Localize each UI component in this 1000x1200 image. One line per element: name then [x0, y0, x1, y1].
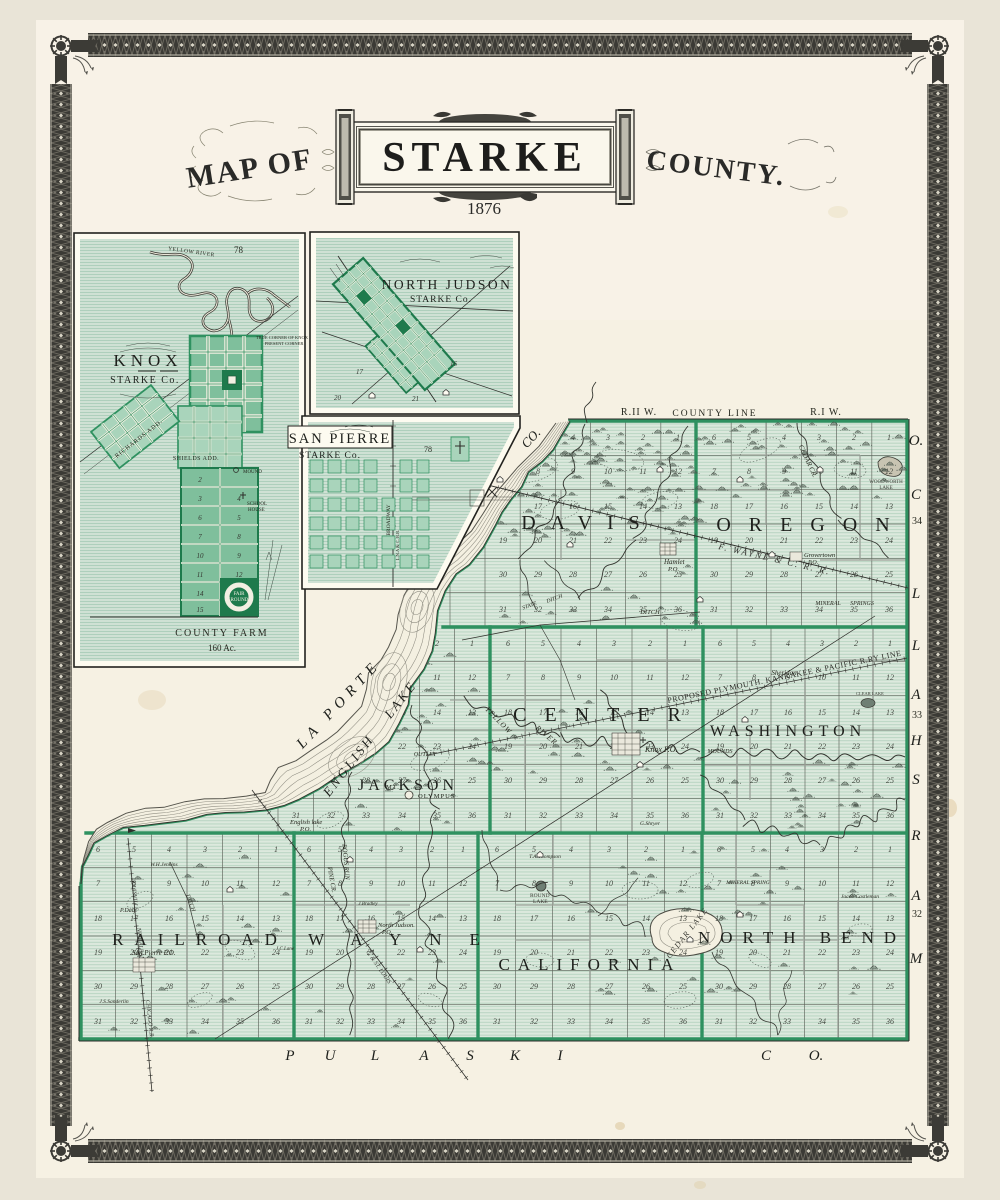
svg-text:17: 17: [336, 914, 345, 923]
svg-text:27: 27: [397, 982, 406, 991]
svg-text:26: 26: [639, 570, 647, 579]
svg-text:2: 2: [854, 845, 858, 854]
svg-text:33: 33: [568, 605, 577, 614]
svg-text:36: 36: [680, 811, 689, 820]
svg-text:5: 5: [541, 639, 545, 648]
svg-text:22: 22: [398, 742, 406, 751]
svg-text:25: 25: [885, 570, 893, 579]
svg-text:9: 9: [569, 879, 573, 888]
svg-text:17: 17: [749, 914, 758, 923]
svg-text:26: 26: [850, 570, 858, 579]
svg-text:11: 11: [852, 673, 859, 682]
svg-text:DAVIS: DAVIS: [521, 512, 655, 534]
svg-text:31: 31: [709, 605, 718, 614]
svg-text:MOUND: MOUND: [243, 470, 262, 475]
svg-text:HOUSE: HOUSE: [248, 508, 265, 513]
svg-text:16: 16: [567, 914, 575, 923]
svg-text:14: 14: [197, 590, 205, 598]
svg-text:Hamlet: Hamlet: [663, 558, 686, 566]
svg-text:6: 6: [506, 639, 510, 648]
svg-text:32: 32: [335, 1017, 344, 1026]
svg-text:30: 30: [93, 982, 102, 991]
svg-text:18: 18: [715, 914, 723, 923]
svg-text:North Judson.: North Judson.: [377, 922, 415, 929]
svg-text:26: 26: [428, 982, 436, 991]
svg-text:26: 26: [236, 982, 244, 991]
svg-text:18: 18: [305, 914, 313, 923]
svg-text:18: 18: [716, 708, 724, 717]
svg-text:15: 15: [818, 914, 826, 923]
svg-text:160 Ac.: 160 Ac.: [208, 643, 236, 653]
svg-text:OREGON: OREGON: [716, 514, 907, 536]
svg-text:27: 27: [605, 982, 614, 991]
svg-text:STARKE Co.: STARKE Co.: [110, 375, 180, 386]
svg-text:S: S: [466, 1048, 474, 1064]
svg-text:3: 3: [398, 845, 403, 854]
svg-text:29: 29: [130, 982, 138, 991]
svg-text:31: 31: [503, 811, 512, 820]
svg-text:34: 34: [396, 1017, 405, 1026]
svg-text:LAKE: LAKE: [879, 486, 892, 491]
svg-text:CENTER: CENTER: [513, 704, 699, 726]
svg-text:28: 28: [567, 982, 575, 991]
svg-text:33: 33: [783, 811, 792, 820]
svg-text:30: 30: [709, 570, 718, 579]
svg-text:34: 34: [604, 1017, 613, 1026]
svg-text:33: 33: [912, 710, 922, 721]
svg-text:30: 30: [492, 982, 501, 991]
svg-text:34: 34: [200, 1017, 209, 1026]
svg-text:10: 10: [818, 879, 826, 888]
svg-text:16: 16: [450, 360, 458, 368]
svg-text:13: 13: [886, 914, 894, 923]
svg-text:26: 26: [852, 982, 860, 991]
svg-text:BROADWAY: BROADWAY: [386, 504, 392, 535]
svg-text:21: 21: [575, 742, 583, 751]
svg-text:O.: O.: [909, 433, 924, 449]
svg-text:36: 36: [458, 1017, 467, 1026]
svg-text:11: 11: [639, 467, 646, 476]
svg-text:29: 29: [336, 982, 344, 991]
svg-text:GROUNDS: GROUNDS: [227, 598, 251, 603]
svg-text:1: 1: [888, 639, 892, 648]
svg-text:23: 23: [852, 948, 860, 957]
svg-text:DITCH: DITCH: [639, 609, 660, 616]
svg-text:21: 21: [367, 948, 375, 957]
svg-text:25: 25: [272, 982, 280, 991]
svg-text:4: 4: [369, 845, 373, 854]
svg-text:19: 19: [94, 948, 102, 957]
svg-text:27: 27: [604, 570, 613, 579]
svg-text:7: 7: [198, 533, 202, 541]
svg-text:20: 20: [749, 948, 757, 957]
svg-text:12: 12: [886, 879, 894, 888]
svg-text:12: 12: [679, 879, 687, 888]
svg-text:25: 25: [886, 982, 894, 991]
svg-text:21: 21: [784, 742, 792, 751]
svg-text:8: 8: [541, 673, 545, 682]
svg-text:35: 35: [851, 811, 860, 820]
svg-text:C: C: [761, 1048, 772, 1064]
svg-text:32: 32: [744, 605, 753, 614]
svg-text:19: 19: [499, 536, 507, 545]
svg-text:32: 32: [326, 811, 335, 820]
svg-text:35: 35: [235, 1017, 244, 1026]
svg-text:36: 36: [678, 1017, 687, 1026]
svg-text:14: 14: [236, 914, 244, 923]
svg-text:2: 2: [430, 845, 434, 854]
svg-text:19: 19: [710, 536, 718, 545]
svg-text:M: M: [909, 951, 924, 967]
svg-text:MOUNDS: MOUNDS: [707, 749, 733, 755]
svg-text:I: I: [557, 1048, 564, 1064]
svg-text:1: 1: [681, 845, 685, 854]
svg-text:31: 31: [714, 1017, 723, 1026]
svg-text:3: 3: [816, 433, 821, 442]
svg-text:5: 5: [747, 433, 751, 442]
svg-text:6: 6: [712, 433, 716, 442]
svg-text:24: 24: [681, 742, 689, 751]
svg-text:1876: 1876: [467, 199, 501, 218]
svg-text:25: 25: [679, 982, 687, 991]
svg-text:78: 78: [234, 245, 244, 255]
svg-text:15: 15: [201, 914, 209, 923]
svg-text:8: 8: [532, 879, 536, 888]
svg-text:5: 5: [237, 514, 241, 522]
svg-text:31: 31: [715, 811, 724, 820]
svg-text:2: 2: [648, 639, 652, 648]
svg-text:29: 29: [534, 570, 542, 579]
svg-text:OUTLET: OUTLET: [414, 752, 437, 758]
svg-text:TRUE CORNER OF KNOX: TRUE CORNER OF KNOX: [256, 335, 309, 340]
svg-text:30: 30: [304, 982, 313, 991]
svg-text:5: 5: [752, 639, 756, 648]
svg-text:P.Daly: P.Daly: [119, 908, 136, 914]
svg-text:35: 35: [432, 811, 441, 820]
svg-text:20: 20: [539, 742, 547, 751]
svg-text:4: 4: [782, 433, 786, 442]
svg-text:11: 11: [236, 879, 243, 888]
svg-text:13: 13: [272, 914, 280, 923]
svg-text:SAN PIERRE: SAN PIERRE: [289, 431, 392, 447]
svg-text:34: 34: [603, 605, 612, 614]
svg-text:35: 35: [851, 1017, 860, 1026]
svg-text:22: 22: [397, 948, 405, 957]
svg-text:P.O.: P.O.: [667, 566, 679, 573]
svg-text:20: 20: [745, 536, 753, 545]
svg-text:31: 31: [498, 605, 507, 614]
svg-text:23: 23: [852, 742, 860, 751]
svg-text:18: 18: [710, 502, 718, 511]
svg-text:SCHOOL: SCHOOL: [247, 502, 267, 507]
svg-text:10: 10: [605, 879, 613, 888]
svg-text:K: K: [509, 1048, 521, 1064]
svg-text:Knox P.O.: Knox P.O.: [644, 745, 678, 754]
svg-text:33: 33: [574, 811, 583, 820]
svg-text:2: 2: [198, 476, 202, 484]
svg-text:23: 23: [639, 536, 647, 545]
svg-text:17: 17: [745, 502, 754, 511]
svg-text:8: 8: [752, 673, 756, 682]
svg-text:21: 21: [412, 395, 419, 403]
svg-text:1: 1: [888, 845, 892, 854]
svg-text:10: 10: [604, 467, 612, 476]
svg-text:11: 11: [646, 673, 653, 682]
svg-text:30: 30: [714, 982, 723, 991]
svg-text:18: 18: [493, 914, 501, 923]
svg-text:26: 26: [642, 982, 650, 991]
svg-text:A: A: [418, 1048, 429, 1064]
svg-text:1: 1: [676, 433, 680, 442]
svg-text:24: 24: [459, 948, 467, 957]
svg-text:36: 36: [271, 1017, 280, 1026]
svg-text:NORTH BEND: NORTH BEND: [698, 928, 906, 947]
svg-text:19: 19: [715, 948, 723, 957]
svg-text:L: L: [911, 638, 920, 654]
svg-text:5: 5: [132, 845, 136, 854]
svg-text:4: 4: [577, 639, 581, 648]
svg-text:14: 14: [639, 502, 647, 511]
svg-text:34: 34: [397, 811, 406, 820]
svg-text:11: 11: [850, 467, 857, 476]
svg-text:33: 33: [779, 605, 788, 614]
svg-text:20: 20: [750, 742, 758, 751]
svg-text:3: 3: [606, 845, 611, 854]
svg-text:23: 23: [236, 948, 244, 957]
svg-text:17: 17: [130, 914, 139, 923]
svg-text:12: 12: [885, 467, 893, 476]
svg-text:17: 17: [530, 914, 539, 923]
svg-text:26: 26: [852, 776, 860, 785]
svg-text:12: 12: [886, 673, 894, 682]
svg-text:11: 11: [428, 879, 435, 888]
svg-text:4: 4: [569, 845, 573, 854]
svg-text:33: 33: [366, 1017, 375, 1026]
svg-text:29: 29: [530, 982, 538, 991]
svg-text:13: 13: [885, 502, 893, 511]
svg-text:9: 9: [782, 467, 786, 476]
svg-text:2: 2: [644, 845, 648, 854]
svg-text:17: 17: [534, 502, 543, 511]
svg-text:24: 24: [886, 742, 894, 751]
svg-text:CALIFORNIA: CALIFORNIA: [499, 955, 682, 974]
svg-text:S: S: [912, 772, 920, 788]
svg-text:3: 3: [197, 495, 202, 503]
svg-text:SPRINGS: SPRINGS: [850, 601, 874, 607]
svg-text:12: 12: [459, 879, 467, 888]
svg-text:32: 32: [538, 811, 547, 820]
svg-text:30: 30: [498, 570, 507, 579]
svg-text:P: P: [284, 1048, 294, 1064]
svg-text:COUNTY LINE: COUNTY LINE: [672, 409, 757, 419]
svg-text:MINERAL SPRING: MINERAL SPRING: [725, 880, 769, 886]
svg-text:14: 14: [642, 914, 650, 923]
svg-text:14: 14: [852, 708, 860, 717]
svg-text:9: 9: [167, 879, 171, 888]
svg-text:9: 9: [237, 552, 241, 560]
svg-text:FAIR: FAIR: [233, 592, 245, 597]
svg-text:STARKE: STARKE: [382, 135, 588, 181]
svg-text:4: 4: [237, 495, 241, 503]
svg-text:36: 36: [884, 605, 893, 614]
svg-text:32: 32: [529, 1017, 538, 1026]
svg-text:2: 2: [852, 433, 856, 442]
svg-text:3: 3: [605, 433, 610, 442]
svg-text:2: 2: [854, 639, 858, 648]
svg-text:LAKE: LAKE: [533, 899, 548, 905]
svg-text:4: 4: [786, 639, 790, 648]
svg-text:20: 20: [534, 536, 542, 545]
svg-text:10: 10: [610, 673, 618, 682]
svg-text:English lake: English lake: [289, 819, 322, 826]
svg-text:1: 1: [461, 845, 465, 854]
svg-text:25: 25: [886, 776, 894, 785]
svg-text:11: 11: [852, 879, 859, 888]
svg-text:27: 27: [818, 776, 827, 785]
svg-text:R.II W.: R.II W.: [621, 407, 657, 418]
svg-text:L: L: [911, 586, 920, 602]
svg-text:30: 30: [503, 776, 512, 785]
svg-text:WASHINGTON: WASHINGTON: [710, 723, 866, 740]
svg-text:12: 12: [468, 673, 476, 682]
svg-text:20: 20: [334, 394, 342, 402]
svg-text:Jacob Castleman: Jacob Castleman: [841, 894, 879, 900]
svg-text:L.N.A & C. R.R.: L.N.A & C. R.R.: [395, 530, 400, 561]
svg-text:11: 11: [433, 673, 440, 682]
svg-text:16: 16: [780, 502, 788, 511]
svg-text:T.A.Thompson: T.A.Thompson: [529, 854, 561, 860]
svg-text:35: 35: [641, 1017, 650, 1026]
svg-text:22: 22: [201, 948, 209, 957]
svg-text:33: 33: [782, 1017, 791, 1026]
svg-text:15: 15: [818, 708, 826, 717]
svg-text:8: 8: [747, 467, 751, 476]
svg-text:33: 33: [164, 1017, 173, 1026]
svg-text:14: 14: [852, 914, 860, 923]
svg-text:24: 24: [886, 948, 894, 957]
svg-text:O.: O.: [809, 1048, 824, 1064]
svg-text:6: 6: [307, 845, 311, 854]
svg-text:31: 31: [93, 1017, 102, 1026]
svg-text:U: U: [325, 1048, 337, 1064]
svg-text:18: 18: [94, 914, 102, 923]
svg-text:11: 11: [642, 879, 649, 888]
svg-text:21: 21: [783, 948, 791, 957]
svg-text:RAILROAD: RAILROAD: [112, 930, 288, 949]
svg-text:34: 34: [817, 1017, 826, 1026]
svg-text:R: R: [910, 828, 920, 844]
svg-text:35: 35: [427, 1017, 436, 1026]
svg-text:31: 31: [304, 1017, 313, 1026]
svg-text:27: 27: [610, 776, 619, 785]
svg-text:4: 4: [571, 433, 575, 442]
svg-text:29: 29: [539, 776, 547, 785]
svg-text:KNOX: KNOX: [113, 351, 182, 370]
svg-text:13: 13: [886, 708, 894, 717]
svg-text:3: 3: [611, 639, 616, 648]
svg-text:Sheridan: Sheridan: [771, 669, 797, 677]
svg-text:3: 3: [819, 845, 824, 854]
svg-text:2: 2: [641, 433, 645, 442]
svg-text:A: A: [910, 888, 921, 904]
svg-text:3: 3: [202, 845, 207, 854]
svg-text:19: 19: [305, 948, 313, 957]
svg-text:9: 9: [369, 879, 373, 888]
svg-text:16: 16: [783, 914, 791, 923]
svg-text:22: 22: [818, 742, 826, 751]
svg-text:16: 16: [569, 502, 577, 511]
svg-text:PRESENT CORNER: PRESENT CORNER: [265, 341, 304, 346]
svg-text:H: H: [910, 733, 923, 749]
svg-text:17: 17: [750, 708, 759, 717]
svg-text:25: 25: [468, 776, 476, 785]
svg-text:23: 23: [850, 536, 858, 545]
svg-text:34: 34: [817, 811, 826, 820]
svg-text:15: 15: [604, 502, 612, 511]
svg-text:9: 9: [577, 673, 581, 682]
svg-text:COUNTY FARM: COUNTY FARM: [175, 628, 268, 639]
svg-text:28: 28: [575, 776, 583, 785]
svg-text:32: 32: [129, 1017, 138, 1026]
svg-text:22: 22: [815, 536, 823, 545]
svg-text:San Pierre P.O.: San Pierre P.O.: [132, 949, 176, 957]
svg-text:3: 3: [819, 639, 824, 648]
svg-text:14: 14: [433, 708, 441, 717]
svg-text:29: 29: [750, 776, 758, 785]
svg-text:SHIELDS ADD.: SHIELDS ADD.: [173, 456, 219, 462]
svg-text:10: 10: [397, 879, 405, 888]
svg-text:28: 28: [367, 982, 375, 991]
svg-text:36: 36: [885, 811, 894, 820]
svg-text:A: A: [910, 687, 921, 703]
svg-text:27: 27: [815, 570, 824, 579]
svg-text:28: 28: [780, 570, 788, 579]
svg-text:33: 33: [361, 811, 370, 820]
svg-text:23: 23: [433, 742, 441, 751]
svg-text:C: C: [911, 487, 922, 503]
svg-text:6: 6: [495, 845, 499, 854]
svg-text:27: 27: [818, 982, 827, 991]
svg-text:12: 12: [681, 673, 689, 682]
svg-text:32: 32: [749, 811, 758, 820]
svg-text:WAYNE: WAYNE: [308, 930, 508, 949]
svg-text:17: 17: [356, 368, 364, 376]
svg-text:16: 16: [784, 708, 792, 717]
svg-text:28: 28: [783, 982, 791, 991]
svg-text:L: L: [370, 1048, 379, 1064]
svg-text:22: 22: [818, 948, 826, 957]
svg-text:5: 5: [532, 845, 536, 854]
svg-text:28: 28: [784, 776, 792, 785]
svg-text:CLEAR LAKE: CLEAR LAKE: [856, 691, 884, 696]
svg-text:5: 5: [751, 845, 755, 854]
svg-text:10: 10: [201, 879, 209, 888]
svg-text:22: 22: [604, 536, 612, 545]
svg-text:20: 20: [336, 948, 344, 957]
svg-text:18: 18: [504, 708, 512, 717]
svg-text:15: 15: [197, 606, 205, 614]
svg-text:2: 2: [435, 639, 439, 648]
svg-text:24: 24: [468, 742, 476, 751]
svg-text:15: 15: [815, 502, 823, 511]
svg-text:J.Bradley: J.Bradley: [358, 902, 378, 907]
svg-text:8: 8: [536, 467, 540, 476]
svg-text:8: 8: [338, 879, 342, 888]
svg-text:STARKE Co.: STARKE Co.: [299, 451, 361, 461]
svg-text:78: 78: [424, 445, 432, 454]
svg-text:2: 2: [238, 845, 242, 854]
svg-text:10: 10: [197, 552, 205, 560]
